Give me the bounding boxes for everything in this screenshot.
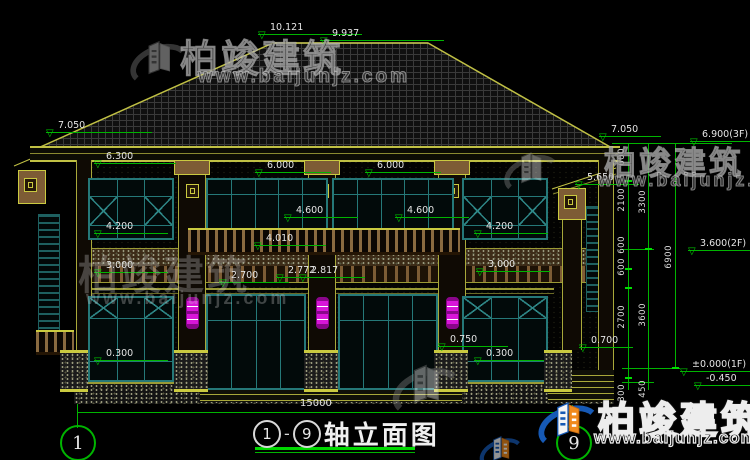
- chain-dim: 3600: [638, 303, 648, 327]
- title-underline-2: [255, 452, 415, 453]
- title-separator: -: [284, 424, 290, 443]
- dimension-tick: [645, 248, 652, 250]
- pane: [340, 321, 364, 388]
- watermark-logo: [502, 142, 560, 200]
- pane: [358, 180, 382, 194]
- porch-ornament-right: [564, 195, 577, 209]
- chain-dim: 6900: [664, 245, 674, 269]
- pane: [464, 298, 492, 318]
- total-width-dim: 15000: [300, 398, 332, 409]
- dimension-tick: [625, 377, 632, 379]
- pane: [232, 321, 256, 388]
- pane: [232, 180, 256, 194]
- pane: [364, 296, 388, 320]
- pane: [429, 180, 452, 194]
- pane: [232, 195, 256, 228]
- level-marker: 7.050: [46, 120, 152, 133]
- dimension-tick: [77, 405, 78, 419]
- pane: [256, 195, 280, 228]
- pane: [208, 180, 232, 194]
- watermark-logo: [478, 428, 524, 460]
- level-marker: 0.300: [474, 348, 544, 361]
- pane: [334, 180, 358, 194]
- title-axis-end: 9: [293, 420, 321, 448]
- balcony-door-2f-right: [332, 178, 454, 230]
- brand-url: www.baijunjz.com: [594, 428, 750, 448]
- pane: [279, 180, 303, 194]
- pane: [340, 296, 364, 320]
- window-row: [90, 180, 172, 197]
- chain-dim: 2100: [617, 188, 627, 212]
- window-row: [464, 298, 546, 319]
- wall-lamp: [446, 297, 459, 329]
- column-pedestal: [304, 350, 338, 392]
- level-marker: 0.700: [579, 335, 633, 348]
- column-pedestal: [174, 350, 208, 392]
- pane: [364, 321, 388, 388]
- window-row: [340, 296, 436, 321]
- window-row: [334, 180, 452, 195]
- wall-lamp: [316, 297, 329, 329]
- pane: [492, 362, 520, 380]
- pane: [519, 298, 546, 318]
- elevation-drawing: 10.121 9.937 7.050 6.300 6.000 6.000 4.6…: [0, 0, 750, 460]
- column-pedestal: [60, 350, 88, 392]
- pane: [413, 296, 436, 320]
- level-marker: 4.600: [284, 205, 358, 218]
- level-marker: 4.010: [254, 233, 326, 246]
- level-marker: 6.000: [365, 160, 441, 173]
- pilaster-ornament: [186, 184, 199, 198]
- column-pedestal: [544, 350, 572, 392]
- pane: [358, 195, 382, 228]
- title-axis-start: 1: [253, 420, 281, 448]
- louver-panel-left: [38, 214, 60, 348]
- watermark-url: www.baijunjz.com: [86, 288, 289, 309]
- level-marker: 7.050: [599, 124, 661, 137]
- watermark-url: www.baijunjz.com: [198, 66, 410, 88]
- chain-dim: 600: [617, 258, 627, 276]
- pane: [492, 298, 520, 318]
- dimension-line: [77, 412, 572, 413]
- dimension-tick: [672, 367, 679, 369]
- pane: [118, 362, 146, 380]
- corner-pilaster-right: [598, 160, 614, 382]
- window-row: [90, 362, 172, 380]
- level-marker: -0.450: [694, 373, 750, 386]
- balcony-door-2f-left: [206, 178, 328, 230]
- pane: [208, 321, 232, 388]
- axis-bubble-1: 1: [60, 425, 96, 460]
- chain-dim: 2700: [617, 305, 627, 329]
- chain-dim: 3300: [638, 190, 648, 214]
- level-marker: 4.200: [474, 221, 548, 234]
- level-marker: 0.300: [94, 348, 168, 361]
- pane: [405, 180, 429, 194]
- porch-post-right: [562, 218, 582, 350]
- watermark-url: www.baijunjz.com: [598, 170, 750, 191]
- brand-logo: [536, 390, 600, 456]
- pane: [281, 321, 304, 388]
- level-marker: 3.000: [476, 259, 550, 272]
- pane: [90, 180, 118, 196]
- level-marker: 3.600(2F): [688, 238, 750, 251]
- pane: [256, 180, 280, 194]
- dimension-tick: [625, 287, 632, 289]
- window-row: [208, 321, 304, 388]
- pane: [382, 180, 406, 194]
- pane: [145, 180, 172, 196]
- pane: [208, 195, 232, 228]
- pane: [257, 321, 281, 388]
- porch-ornament-left: [24, 178, 37, 192]
- pane: [519, 362, 546, 380]
- window-row: [208, 180, 326, 195]
- pane: [118, 180, 146, 196]
- pane: [145, 362, 172, 380]
- level-marker: ±0.000(1F): [680, 359, 750, 372]
- level-marker: 2.817: [299, 265, 365, 278]
- pane: [303, 180, 326, 194]
- level-marker: 0.750: [438, 334, 508, 347]
- watermark-logo: [390, 352, 462, 424]
- level-marker: 6.000: [255, 160, 331, 173]
- pilaster-capital: [174, 160, 210, 175]
- level-marker: 4.200: [94, 221, 168, 234]
- pane: [464, 180, 492, 196]
- level-marker: 4.600: [395, 205, 469, 218]
- chain-dim: 600: [617, 236, 627, 254]
- pane: [389, 296, 413, 320]
- level-marker: 6.300: [94, 151, 176, 164]
